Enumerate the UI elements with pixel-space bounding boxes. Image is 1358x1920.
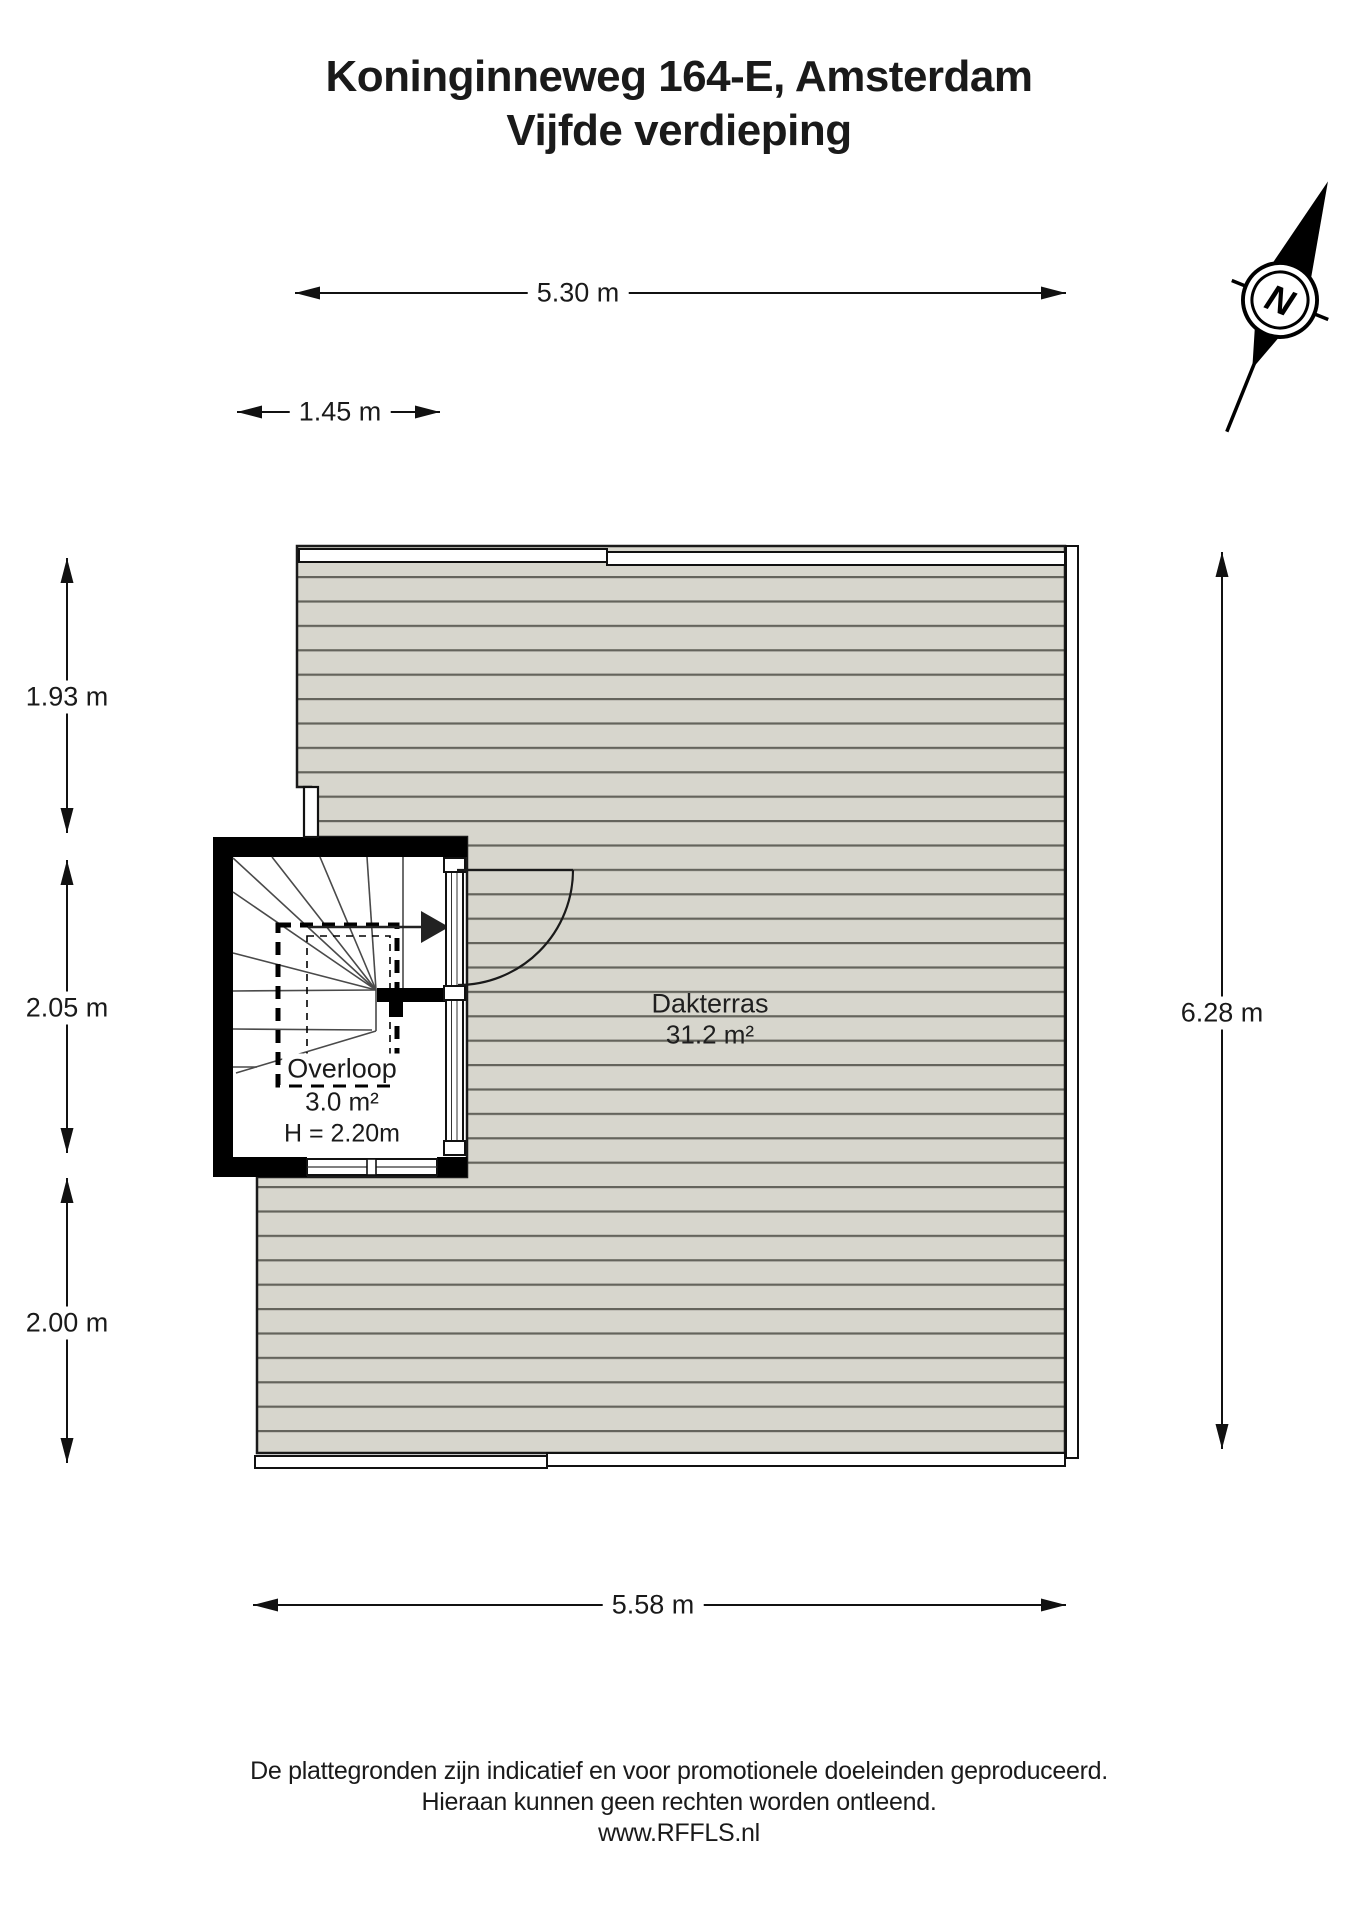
- disclaimer: De plattegronden zijn indicatief en voor…: [0, 1756, 1358, 1849]
- room-area-overloop: 3.0 m²: [305, 1087, 379, 1118]
- disclaimer-line1: De plattegronden zijn indicatief en voor…: [0, 1756, 1358, 1787]
- railing-bottom-left: [255, 1456, 547, 1468]
- room-area-dakterras: 31.2 m²: [666, 1020, 754, 1051]
- floor-plan: N: [0, 0, 1358, 1920]
- dim-label-stairwell: 1.45 m: [290, 396, 391, 429]
- railing-right: [1066, 546, 1078, 1458]
- dim-label-left-middle: 2.05 m: [17, 992, 118, 1025]
- dim-label-left-lower: 2.00 m: [17, 1307, 118, 1340]
- north-arrow-icon: N: [1179, 162, 1358, 451]
- room-label-dakterras: Dakterras: [651, 989, 768, 1020]
- dim-label-bottom: 5.58 m: [603, 1589, 704, 1622]
- railing-bottom-right: [547, 1453, 1065, 1466]
- disclaimer-line2: Hieraan kunnen geen rechten worden ontle…: [0, 1787, 1358, 1818]
- dim-label-right: 6.28 m: [1172, 997, 1273, 1030]
- railing-top-right: [607, 552, 1065, 565]
- floorplan-page: Koninginneweg 164-E, Amsterdam Vijfde ve…: [0, 0, 1358, 1920]
- railing-top-left: [299, 549, 607, 562]
- wall-stub: [304, 787, 318, 837]
- bottom-window: [307, 1159, 437, 1175]
- dim-label-top: 5.30 m: [528, 277, 629, 310]
- dim-label-left-upper: 1.93 m: [17, 681, 118, 714]
- room-height-overloop: H = 2.20m: [284, 1120, 400, 1149]
- disclaimer-line3: www.RFFLS.nl: [0, 1818, 1358, 1849]
- room-label-overloop: Overloop: [282, 1054, 402, 1085]
- stairwell-window: [444, 858, 465, 1155]
